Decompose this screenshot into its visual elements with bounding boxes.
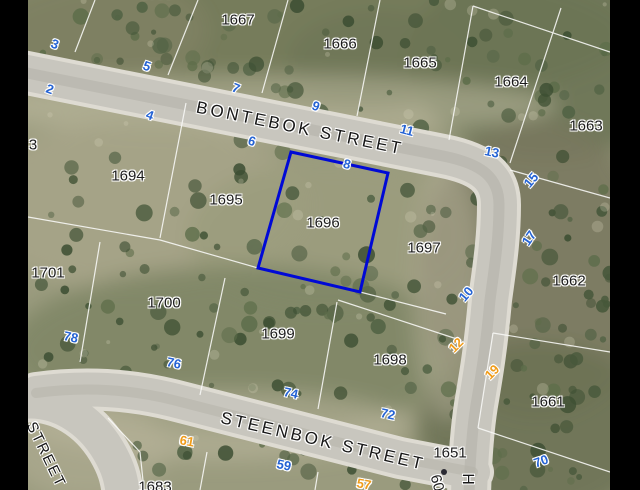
aerial-imagery[interactable] bbox=[28, 0, 610, 490]
aerial-map-svg bbox=[28, 0, 610, 490]
left-letterbox-bar bbox=[0, 0, 28, 490]
survey-marker-dot bbox=[441, 469, 447, 475]
right-letterbox-bar bbox=[610, 0, 640, 490]
map-viewport[interactable]: 1668166716661665166416631694169516961697… bbox=[0, 0, 640, 490]
